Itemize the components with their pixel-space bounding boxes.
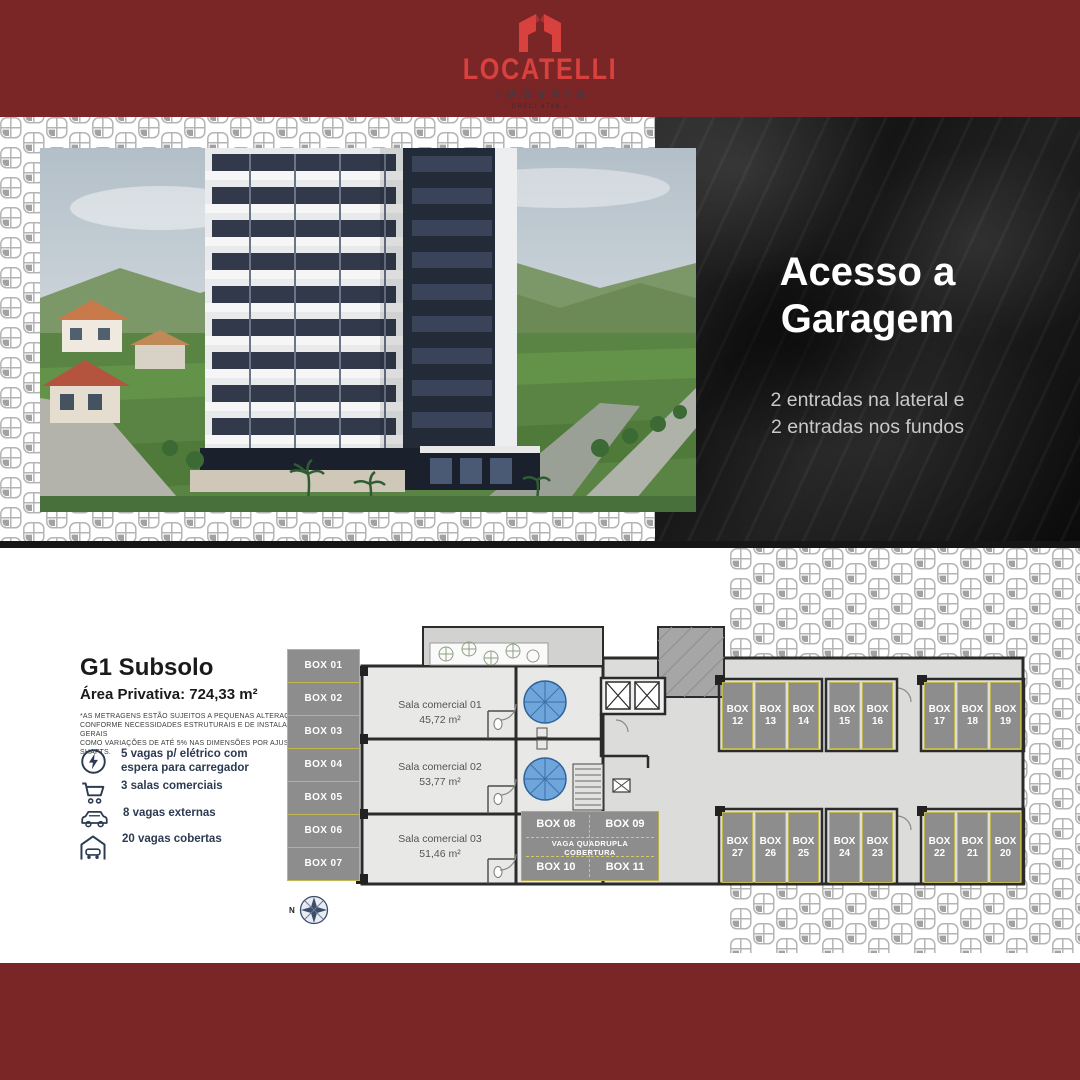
parking-box: BOX 09: [591, 818, 659, 830]
room-area: 53,77 m²: [365, 776, 515, 788]
quad-parking-block: BOX 08 BOX 09 VAGA QUADRUPLA COBERTURA B…: [521, 811, 659, 881]
compass-label: N: [289, 906, 295, 915]
brand-logo: LOCATELLI IMÓVEIS CRECI 4748-J: [0, 0, 1080, 117]
brand-subtitle: IMÓVEIS: [489, 89, 591, 101]
divider: [526, 837, 654, 838]
brand-creci: CRECI 4748-J: [512, 104, 569, 110]
parking-box: BOX 18: [957, 682, 988, 749]
middle-band: Acesso a Garagem 2 entradas na lateral e…: [0, 117, 1080, 541]
shopping-cart-icon: [80, 780, 107, 805]
parking-box: BOX 21: [957, 812, 988, 883]
room-area: 45,72 m²: [365, 714, 515, 726]
feature-commercial-rooms: 3 salas comerciais: [80, 780, 251, 805]
parking-box: BOX 22: [924, 812, 955, 883]
parking-box: BOX 27: [722, 812, 753, 883]
feature-ev-parking: 5 vagas p/ elétrico com espera para carr…: [80, 748, 251, 775]
flyer-page: LOCATELLI IMÓVEIS CRECI 4748-J: [0, 0, 1080, 1080]
building-render-photo: [40, 148, 696, 512]
ev-charger-icon: [80, 748, 107, 775]
parking-box: BOX 25: [788, 812, 819, 883]
parking-box: BOX 13: [755, 682, 786, 749]
room-name: Sala comercial 01: [365, 699, 515, 711]
parking-box: BOX 15: [829, 682, 860, 749]
main-building: [190, 148, 540, 492]
parking-box: BOX 20: [990, 812, 1021, 883]
parking-box: BOX 12: [722, 682, 753, 749]
parking-box: BOX 02: [287, 682, 360, 716]
parking-box: BOX 16: [862, 682, 893, 749]
garage-access-panel: Acesso a Garagem 2 entradas na lateral e…: [655, 117, 1080, 541]
quad-label: COBERTURA: [522, 848, 658, 857]
parking-box: BOX 24: [829, 812, 860, 883]
panel-title: Acesso a Garagem: [780, 249, 956, 343]
panel-subtitle: 2 entradas na lateral e 2 entradas nos f…: [770, 387, 964, 441]
room-name: Sala comercial 02: [365, 761, 515, 773]
parking-box: BOX 03: [287, 715, 360, 749]
parking-box: BOX 26: [755, 812, 786, 883]
unit-area: Área Privativa: 724,33 m²: [80, 686, 258, 703]
parking-box: BOX 10: [522, 861, 590, 873]
feature-covered-parking: 20 vagas cobertas: [78, 833, 252, 863]
unit-title: G1 Subsolo: [80, 654, 213, 682]
car-icon: [80, 807, 109, 829]
parking-box: BOX 23: [862, 812, 893, 883]
parking-box: BOX 08: [522, 818, 590, 830]
compass-rose-icon: N: [286, 891, 332, 929]
locatelli-buildings-icon: [512, 8, 568, 52]
parking-box: BOX 04: [287, 748, 360, 782]
parking-box: BOX 19: [990, 682, 1021, 749]
parking-box: BOX 01: [287, 649, 360, 683]
parking-box: BOX 11: [591, 861, 659, 873]
divider: [439, 95, 479, 96]
divider: [601, 95, 641, 96]
parking-box: BOX 05: [287, 781, 360, 815]
brand-subtitle-row: IMÓVEIS: [439, 89, 641, 101]
quad-label: VAGA QUADRUPLA: [522, 839, 658, 848]
parking-box: BOX 06: [287, 814, 360, 848]
parking-box: BOX 17: [924, 682, 955, 749]
parking-box: BOX 07: [287, 847, 360, 881]
room-area: 51,46 m²: [365, 848, 515, 860]
covered-garage-icon: [78, 833, 108, 863]
elevators: [601, 678, 665, 714]
feature-external-parking: 8 vagas externas: [80, 807, 253, 829]
footer-band: [0, 963, 1080, 1080]
room-name: Sala comercial 03: [365, 833, 515, 845]
divider-bar: [0, 541, 1080, 548]
brand-name: LOCATELLI: [463, 53, 618, 87]
parking-box: BOX 14: [788, 682, 819, 749]
